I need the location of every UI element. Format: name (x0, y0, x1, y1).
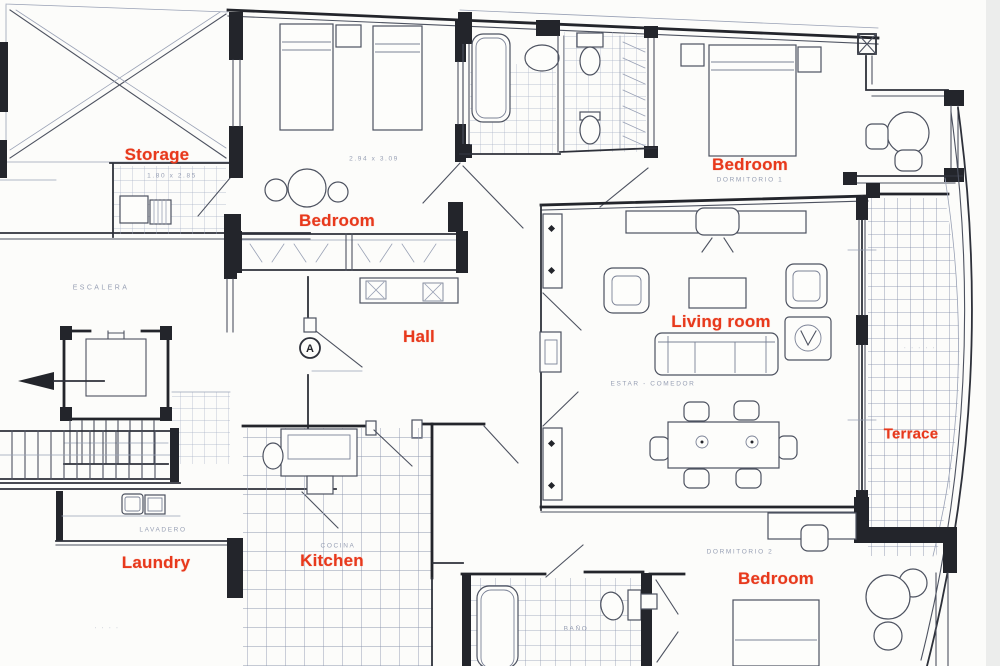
wall-niche (641, 594, 657, 609)
room-label-living-room: Living room (671, 312, 770, 332)
hall-door (316, 331, 362, 367)
sink-icon (525, 45, 559, 71)
dining-table-icon (650, 401, 797, 488)
bidet-icon (580, 116, 600, 144)
bathroom-door (546, 545, 583, 577)
sofa-icon (655, 333, 778, 375)
annotation-terrace-marks: · · · · · (904, 345, 936, 352)
living-room-door (543, 293, 581, 330)
corridor-door (484, 426, 518, 463)
side-table-icon (785, 317, 831, 360)
annotation-living-room-dims: ESTAR - COMEDOR (611, 381, 696, 388)
annotation-bedroom-top-right-dims: DORMITORIO 1 (717, 177, 784, 184)
dining-chair-icon (684, 402, 709, 421)
lower-stair-treads-icon (0, 428, 179, 482)
room-label-hall: Hall (403, 327, 435, 347)
toilet-tank-icon (628, 590, 641, 620)
annotation-bedroom-bottom-dims: DORMITORIO 2 (707, 549, 774, 556)
toilet-icon (580, 47, 600, 75)
twin-bed-icon (280, 24, 333, 130)
table-and-chairs-icon (265, 169, 348, 207)
laundry-sink-icon (145, 495, 165, 514)
kitchen-island-icon (281, 429, 357, 476)
stool-icon (895, 150, 922, 171)
dining-chair-icon (778, 436, 797, 459)
bathroom-top-b (560, 26, 658, 158)
room-label-bedroom-bottom: Bedroom (738, 569, 814, 589)
room-label-laundry: Laundry (122, 553, 190, 573)
chair-icon (801, 525, 828, 551)
room-label-bedroom-top-left: Bedroom (299, 211, 375, 231)
room-label-bedroom-top-right: Bedroom (712, 155, 788, 175)
scan-edge (986, 0, 1000, 666)
armchair-icon (604, 268, 649, 313)
room-label-terrace: Terrace (884, 426, 939, 443)
annotation-stairs: ESCALERA (73, 285, 130, 292)
annotation-exterior-marks: · · · · (94, 625, 119, 632)
stairs-core (0, 239, 237, 482)
hall-bath-door (463, 166, 523, 228)
room-label-kitchen: Kitchen (300, 551, 364, 571)
wall-cabinet (543, 428, 562, 500)
sideboard-icon (360, 278, 458, 303)
bed-icon (733, 600, 819, 666)
toilet-tank-icon (577, 33, 603, 47)
bathroom-bottom (433, 545, 657, 666)
nightstand-icon (798, 47, 821, 72)
twin-bed-icon (373, 26, 422, 130)
shelf-icon (120, 196, 148, 223)
stairs-arrow-icon (18, 372, 104, 390)
chair-icon (866, 124, 888, 149)
floor-plan: A (0, 0, 1000, 666)
living-room-door (543, 392, 578, 426)
bedroom-door (656, 580, 678, 662)
nightstand-icon (681, 44, 704, 66)
annotation-bedroom-top-left-dims: 2.94 x 3.09 (349, 156, 399, 163)
section-marker-a: A (300, 338, 320, 358)
landing-tiles (172, 392, 230, 464)
nightstand-icon (336, 25, 361, 47)
bathtub-icon (472, 34, 510, 122)
room-label-storage: Storage (125, 145, 190, 165)
appliance-icon (150, 200, 171, 224)
armchair-icon (786, 264, 827, 308)
double-bed-icon (709, 45, 796, 156)
dining-chair-icon (650, 437, 669, 460)
annotation-storage-dims: 1.80 x 2.85 (147, 173, 197, 180)
living-room-area (540, 196, 876, 512)
round-table-icon (887, 112, 929, 154)
annotation-bathroom-dims: BAÑO (564, 626, 589, 633)
dining-chair-icon (736, 469, 761, 488)
annotation-laundry-dims: LAVADERO (139, 527, 186, 534)
elevator-icon (60, 326, 172, 421)
chair-icon (263, 443, 283, 469)
tv-icon (696, 208, 739, 252)
round-chair-set-icon (866, 569, 927, 650)
alcove-nook (843, 56, 964, 198)
washing-machine-icon (122, 494, 143, 514)
wardrobe-icon (230, 231, 468, 273)
desk-icon (768, 513, 856, 551)
wall-cabinet (543, 214, 562, 288)
void-cross-area (0, 4, 230, 180)
section-marker-label: A (306, 343, 314, 355)
bathroom-top-a (458, 12, 564, 158)
coffee-table-icon (689, 278, 746, 308)
kitchen-unit-icon (307, 476, 333, 494)
bedroom-door (423, 163, 460, 203)
dining-chair-icon (684, 469, 709, 488)
bathtub-icon (477, 586, 518, 666)
dining-chair-icon (734, 401, 759, 420)
annotation-kitchen-dims: COCINA (321, 543, 356, 550)
